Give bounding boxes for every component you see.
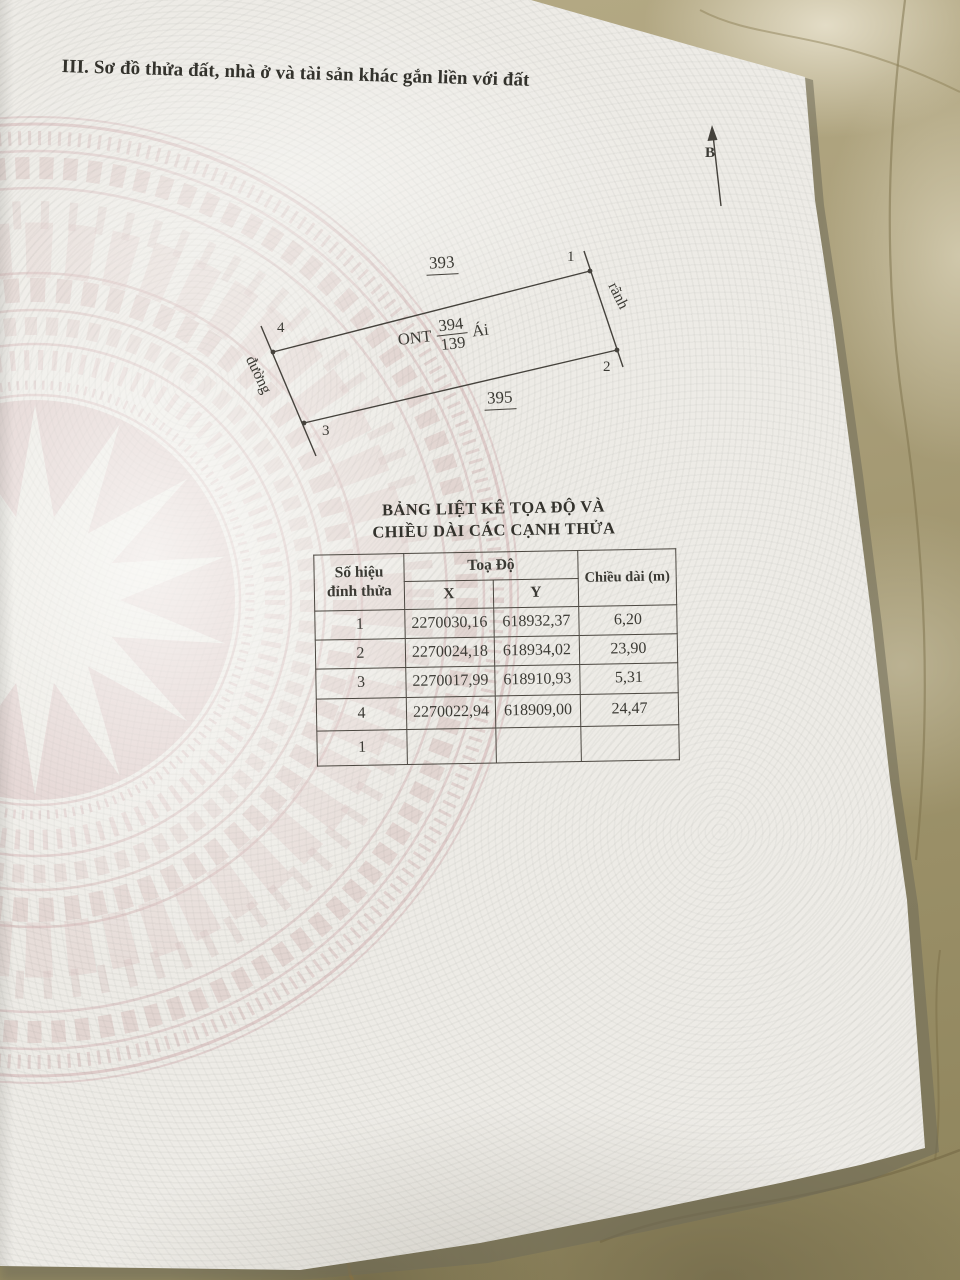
corner-label-2: 2 (603, 359, 611, 376)
adjacent-parcel-393: 393 (425, 252, 458, 276)
table-row: 1 (317, 724, 680, 765)
photographed-certificate: III. Sơ đồ thửa đất, nhà ở và tài sản kh… (0, 0, 960, 1280)
header-vertex: Số hiệu đỉnh thửa (314, 553, 405, 611)
land-use-code: ONT (397, 327, 433, 351)
corner-label-3: 3 (322, 423, 330, 440)
header-y: Y (493, 578, 578, 607)
coordinate-table-block: BẢNG LIỆT KÊ TỌA ĐỘ VÀ CHIỀU DÀI CÁC CẠN… (309, 494, 682, 766)
corner-label-1: 1 (567, 249, 575, 266)
north-arrow-icon (708, 125, 722, 206)
parcel-area: 139 (437, 333, 470, 354)
header-x: X (404, 580, 493, 610)
north-label: B (705, 145, 715, 162)
adjacent-parcel-395: 395 (483, 387, 516, 411)
parcel-name-suffix: Ái (471, 320, 490, 342)
header-length: Chiều dài (m) (578, 548, 677, 606)
corner-label-4: 4 (277, 320, 285, 337)
parcel-number-area-fraction: 394 139 (435, 314, 470, 354)
coordinate-table: Số hiệu đỉnh thửa Toạ Độ Chiều dài (m) X… (313, 548, 680, 766)
header-coords: Toạ Độ (404, 550, 578, 581)
